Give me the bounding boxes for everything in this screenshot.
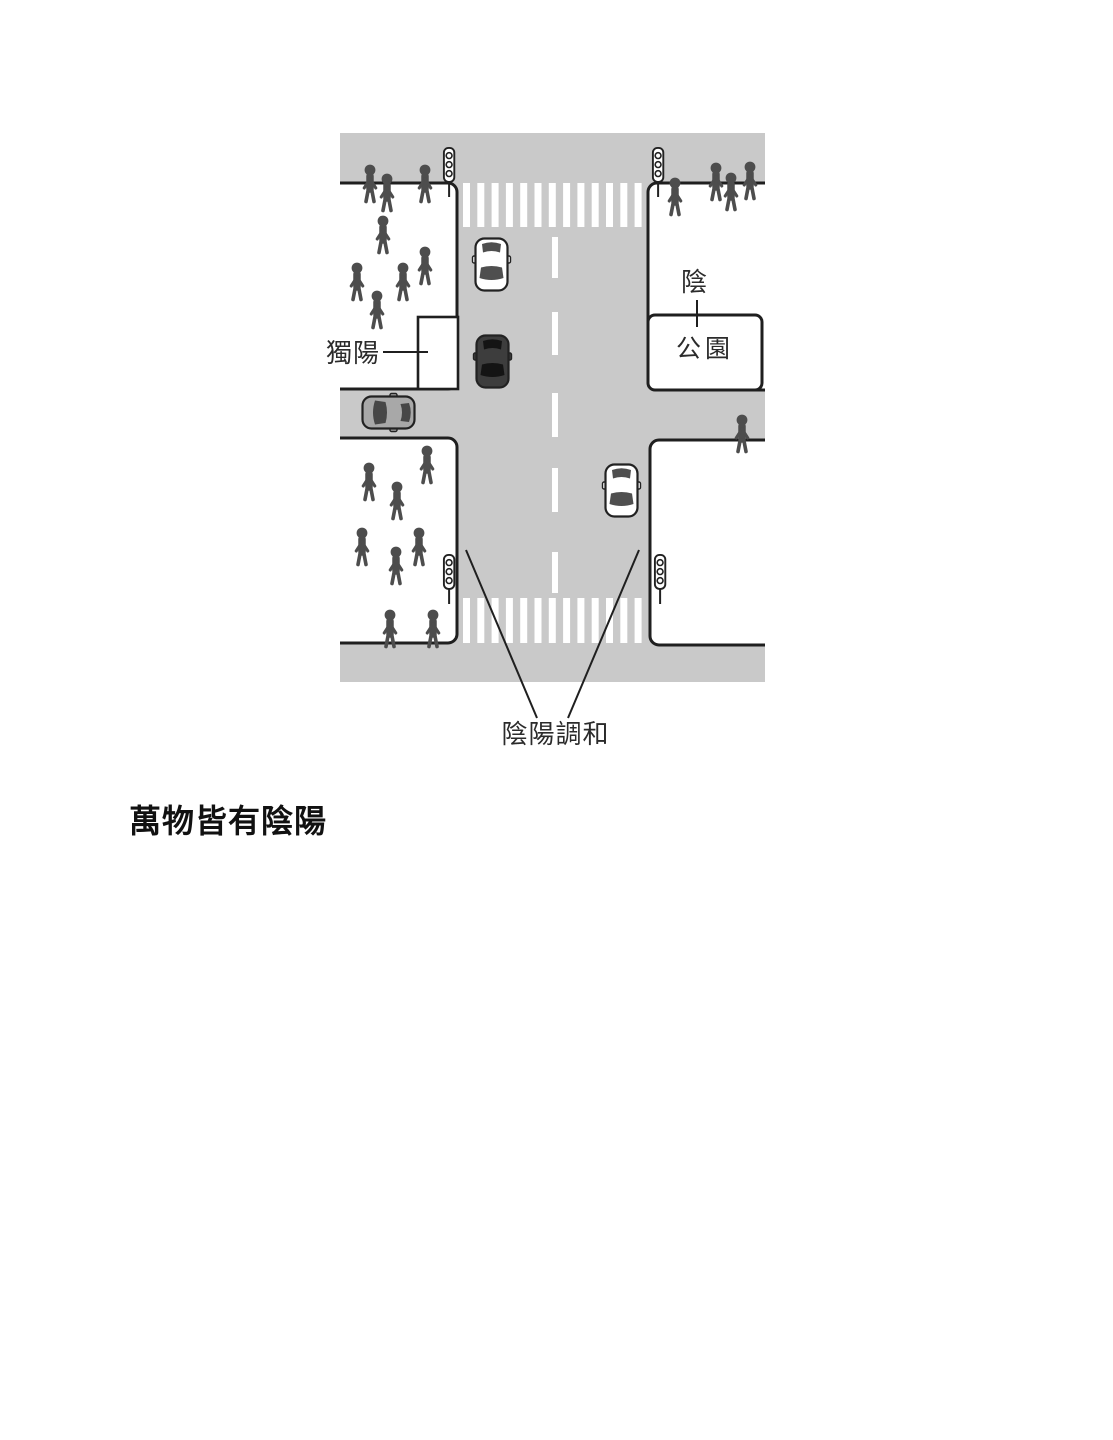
crosswalk-stripe bbox=[592, 598, 599, 643]
crosswalk-stripe bbox=[606, 183, 613, 227]
crosswalk-stripe bbox=[477, 183, 484, 227]
crosswalk-stripe bbox=[463, 598, 470, 643]
block-lower-right bbox=[650, 440, 765, 645]
crosswalk-stripe bbox=[563, 183, 570, 227]
crosswalk-stripe bbox=[549, 183, 556, 227]
crosswalk-stripe bbox=[520, 598, 527, 643]
crosswalk-stripe bbox=[563, 598, 570, 643]
crosswalk-stripe bbox=[477, 598, 484, 643]
crosswalk-stripe bbox=[635, 598, 642, 643]
car-white-icon bbox=[473, 239, 511, 291]
crosswalk-stripe bbox=[577, 183, 584, 227]
car-gray-icon bbox=[363, 394, 415, 432]
crosswalk-stripe bbox=[535, 183, 542, 227]
crosswalk-stripe bbox=[592, 183, 599, 227]
crosswalk-stripe bbox=[535, 598, 542, 643]
car-black-icon bbox=[474, 336, 512, 388]
label-yin-yang-harmony: 陰陽調和 bbox=[440, 720, 671, 749]
car-white-icon bbox=[603, 465, 641, 517]
crosswalk-stripe bbox=[620, 183, 627, 227]
label-yin: 陰 bbox=[681, 268, 707, 297]
crosswalk-stripe bbox=[635, 183, 642, 227]
crosswalk-stripe bbox=[506, 598, 513, 643]
crosswalk-stripe bbox=[492, 183, 499, 227]
crosswalk-stripe bbox=[520, 183, 527, 227]
block-lower-left bbox=[340, 438, 457, 643]
crosswalk-stripe bbox=[549, 598, 556, 643]
crosswalk-stripe bbox=[506, 183, 513, 227]
crosswalk-stripe bbox=[463, 183, 470, 227]
section-heading: 萬物皆有陰陽 bbox=[129, 796, 327, 842]
book-page: 陰 公園 獨陽 陰陽調和 萬物皆有陰陽 bbox=[0, 0, 1113, 1440]
yin-yang-street-diagram bbox=[340, 133, 765, 753]
label-park: 公園 bbox=[648, 336, 762, 364]
label-lone-yang: 獨陽 bbox=[326, 339, 380, 368]
street-diagram-canvas bbox=[340, 133, 765, 753]
crosswalk-stripe bbox=[620, 598, 627, 643]
crosswalk-stripe bbox=[577, 598, 584, 643]
